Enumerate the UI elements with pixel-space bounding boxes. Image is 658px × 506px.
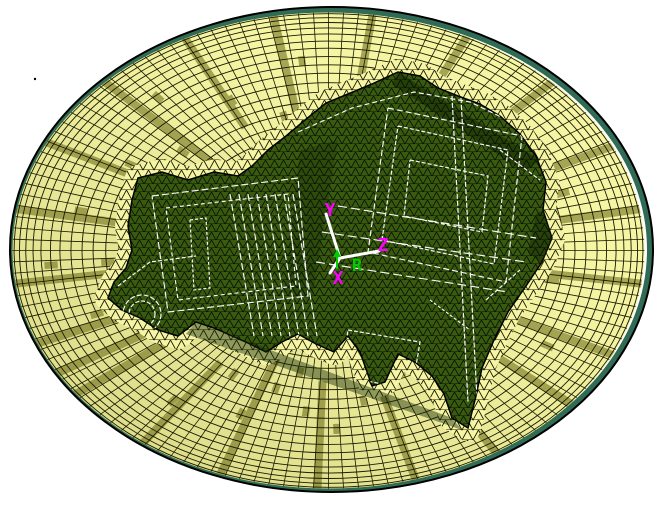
triad-z-label: Z — [378, 235, 389, 256]
mesh-render-root — [0, 0, 658, 506]
triad-x-label: X — [333, 268, 344, 289]
stray-pixel — [34, 78, 36, 80]
triad-r-label: R — [352, 256, 363, 276]
cae-viewport: Y Z X R — [0, 0, 658, 506]
model-render: Y Z X R — [0, 0, 658, 506]
triad-y-label: Y — [325, 200, 336, 221]
